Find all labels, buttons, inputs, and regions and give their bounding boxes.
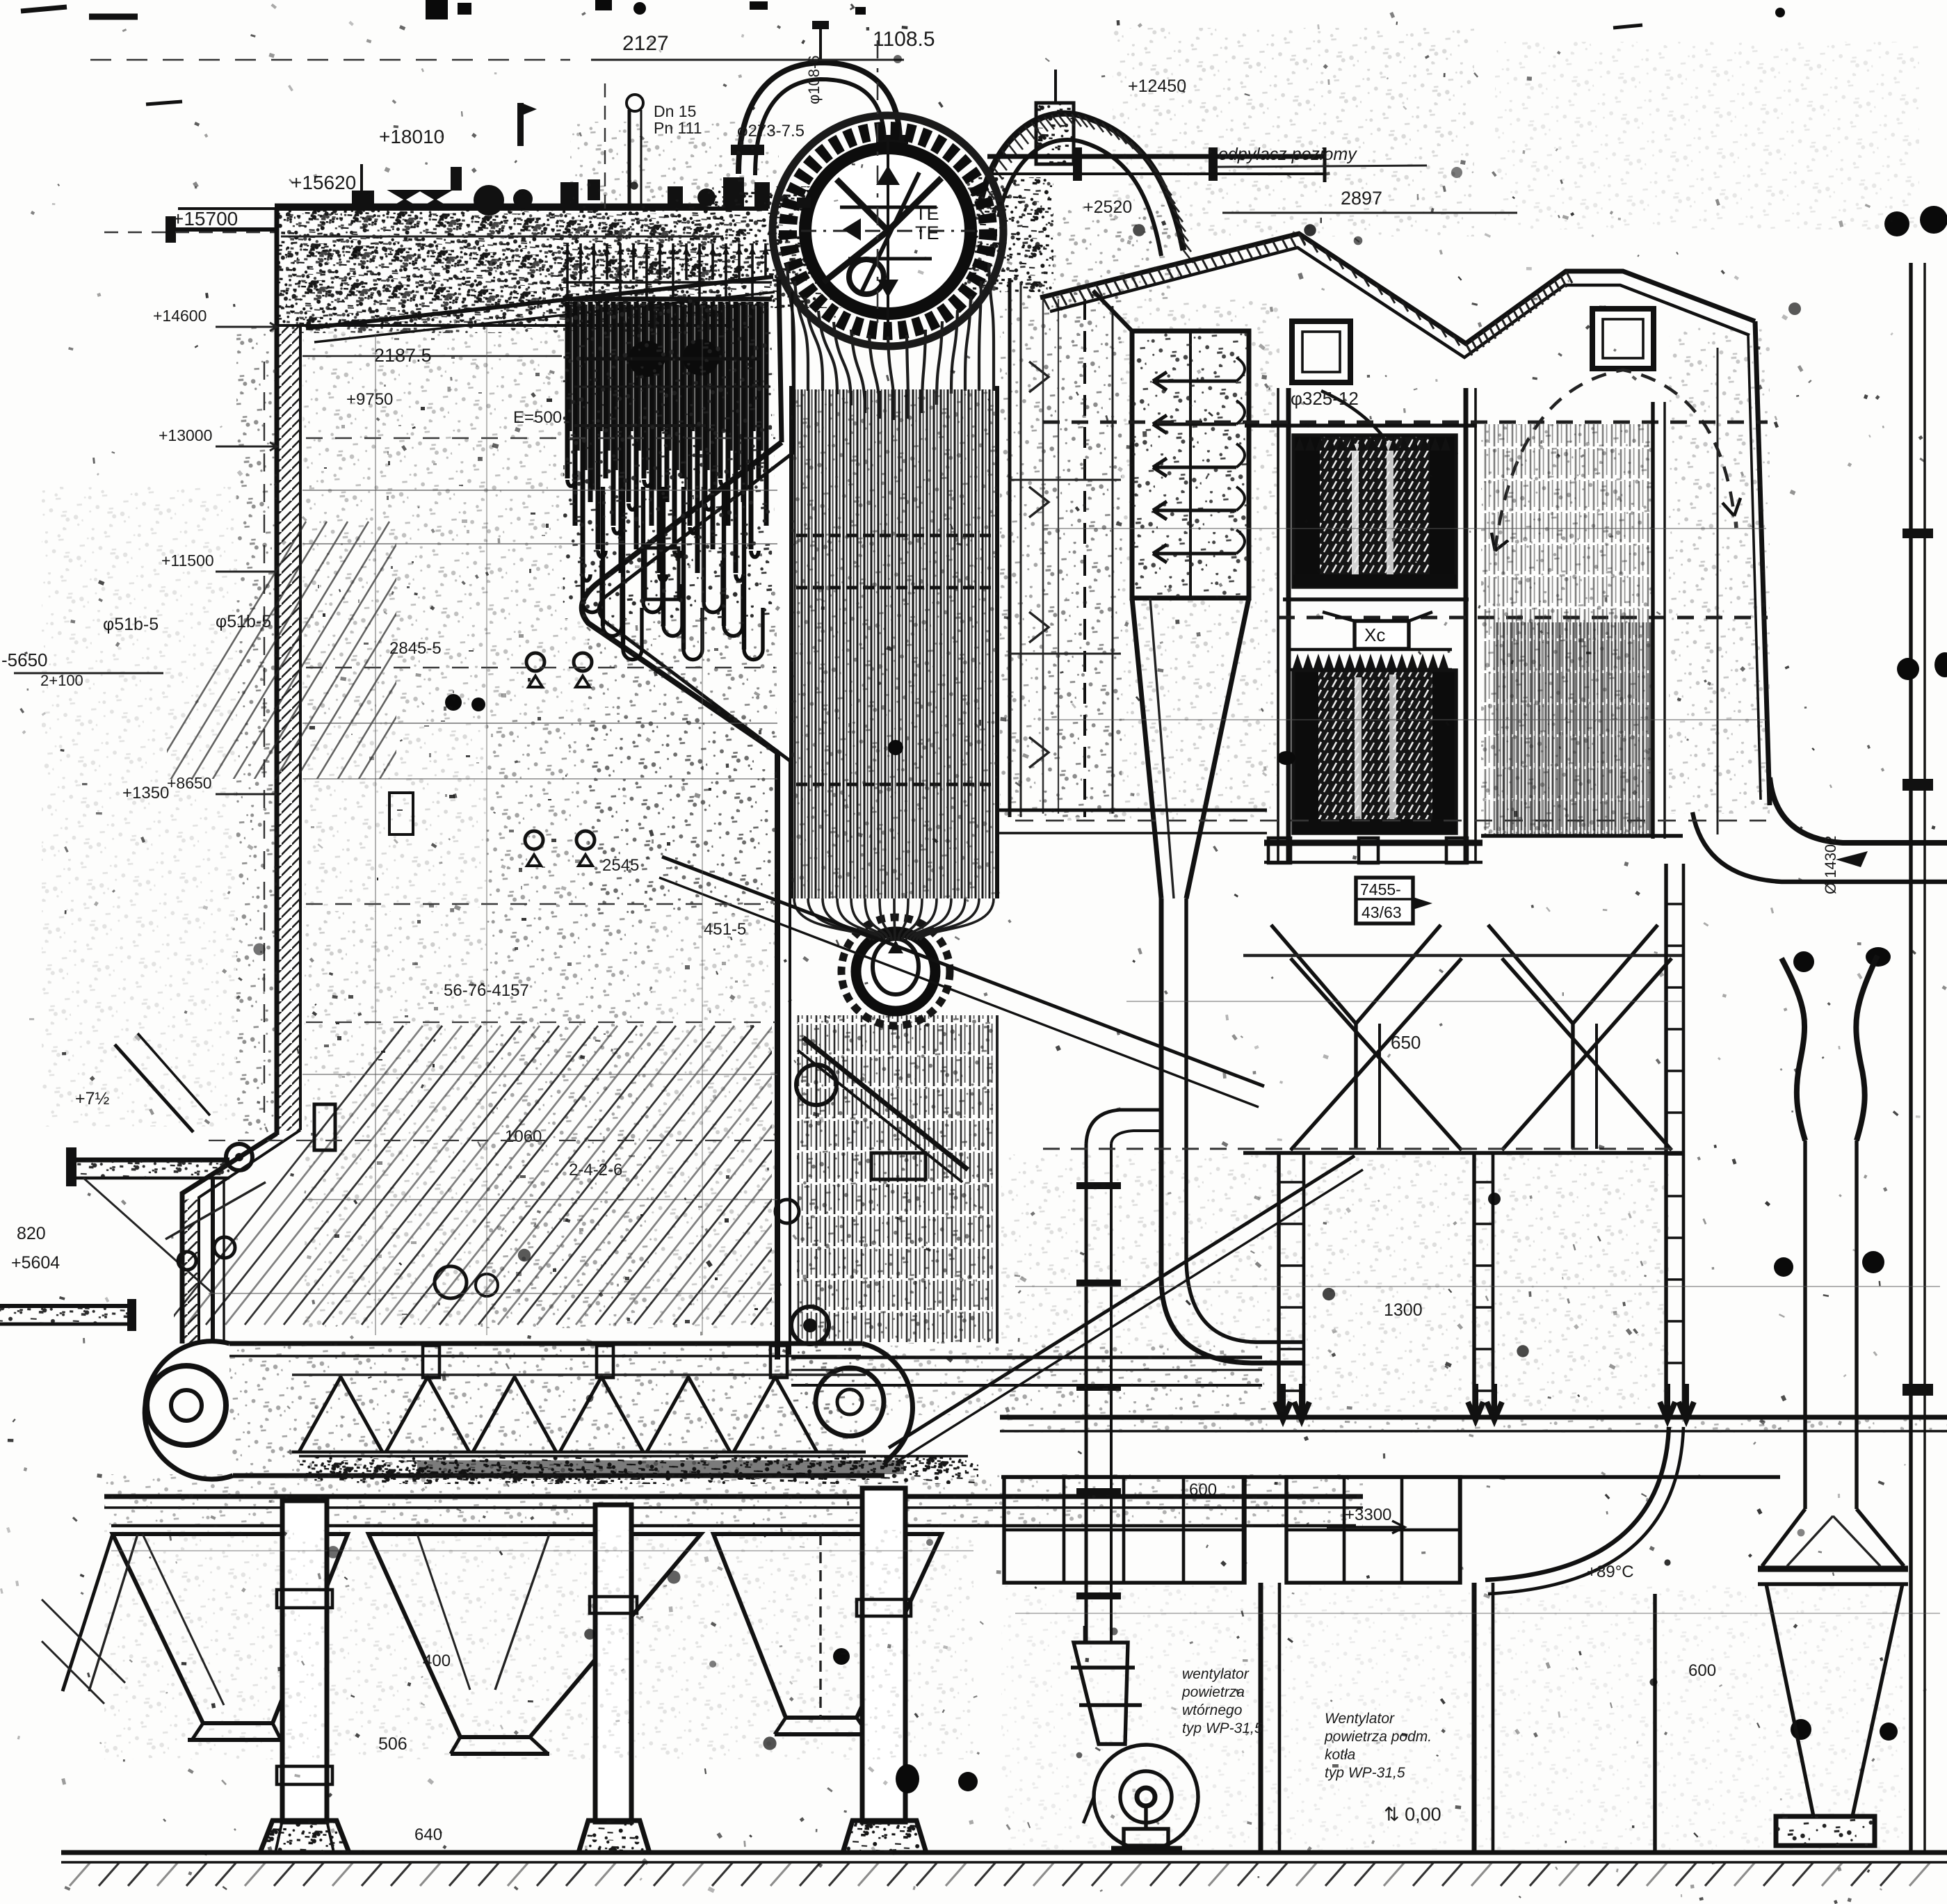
- svg-text:+89°C: +89°C: [1587, 1563, 1634, 1581]
- svg-text:Dn 15: Dn 15: [654, 102, 696, 120]
- svg-text:7455-: 7455-: [1360, 880, 1401, 898]
- svg-text:Ø 14302: Ø 14302: [1822, 836, 1839, 894]
- svg-text:650: 650: [1391, 1032, 1421, 1053]
- svg-text:+18010: +18010: [379, 126, 444, 147]
- svg-text:φ325-12: φ325-12: [1291, 388, 1359, 409]
- svg-text:+5604: +5604: [11, 1253, 60, 1273]
- svg-text:2127: 2127: [622, 32, 669, 55]
- svg-text:TE: TE: [915, 203, 939, 224]
- svg-text:+13000: +13000: [159, 426, 212, 444]
- svg-text:1108.5: 1108.5: [873, 28, 935, 51]
- svg-text:Xc: Xc: [1364, 624, 1385, 645]
- svg-text:820: 820: [17, 1224, 46, 1243]
- svg-text:600: 600: [1189, 1481, 1217, 1499]
- svg-text:+15620: +15620: [291, 172, 356, 193]
- svg-text:43/63: 43/63: [1362, 903, 1402, 921]
- svg-text:φ108-6: φ108-6: [805, 55, 823, 104]
- svg-text:+3300: +3300: [1345, 1506, 1391, 1524]
- svg-text:TE: TE: [915, 223, 939, 243]
- svg-text:+15700: +15700: [172, 208, 238, 229]
- svg-text:640: 640: [414, 1825, 442, 1844]
- svg-text:-5650: -5650: [1, 650, 48, 670]
- svg-text:+14600: +14600: [153, 307, 207, 325]
